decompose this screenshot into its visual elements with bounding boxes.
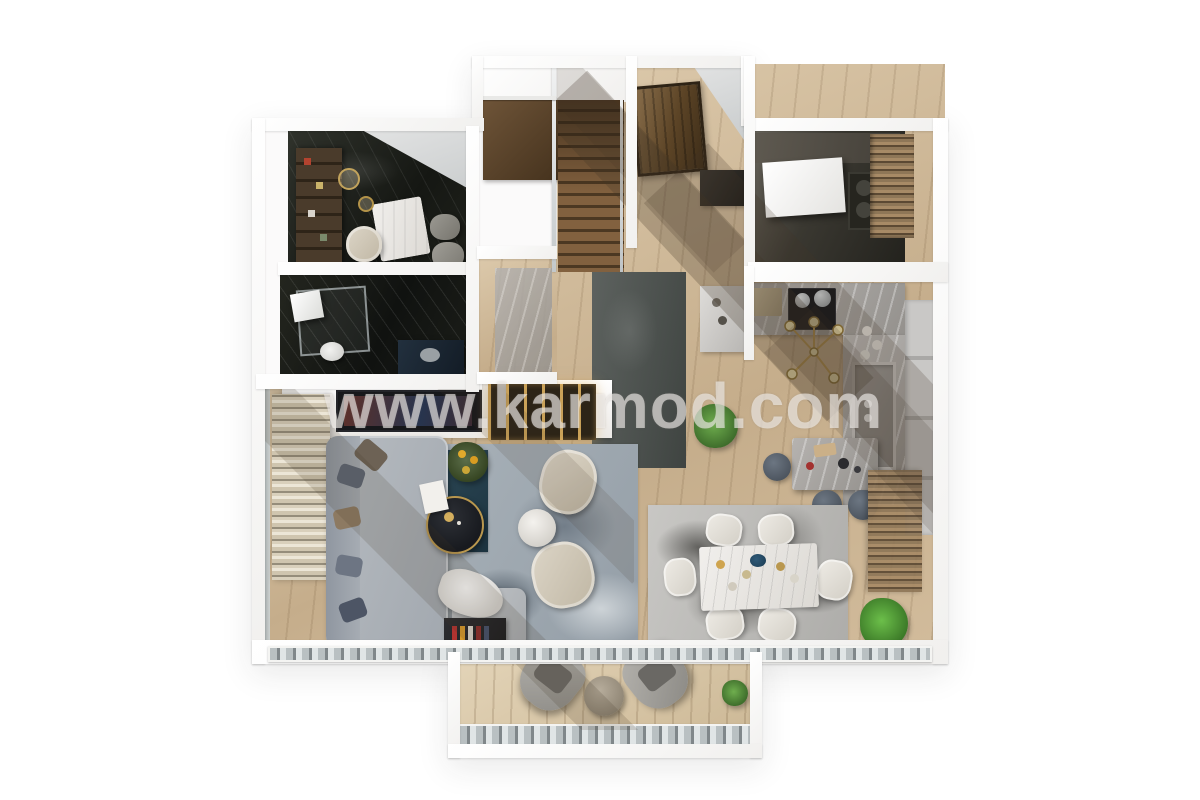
stair-glass-balustrade-right: [620, 100, 623, 272]
stair-landing: [483, 100, 560, 180]
console-decor-icon: [712, 298, 721, 307]
corridor-runner-rug: [592, 272, 686, 468]
cooking-pot-icon: [814, 290, 831, 307]
wall-balcony-bottom: [448, 744, 762, 758]
coffee-table-decor-icon: [444, 512, 454, 522]
utility-table: [762, 157, 846, 217]
dining-chair: [662, 556, 698, 597]
wall-top-block-left: [472, 56, 483, 126]
wall-bathroom-living: [256, 374, 482, 389]
round-side-table: [518, 509, 556, 547]
entry-console: [700, 170, 744, 206]
study-tub-chair: [346, 226, 382, 262]
balcony-glass-railing: [458, 724, 754, 746]
wall-stair-entry: [626, 56, 637, 248]
tv-screen: [344, 396, 472, 426]
dining-louvered-blinds: [868, 470, 922, 592]
wall-hallway-bottom: [477, 372, 557, 384]
wall-perimeter-top-left: [252, 118, 484, 131]
flower-arrangement: [448, 442, 488, 482]
wall-top-block-top: [472, 56, 752, 68]
cooking-pot-icon: [795, 293, 810, 308]
pendant-lamp-icon: [358, 196, 374, 212]
island-red-decor-icon: [806, 462, 814, 470]
wall-stair-hallway: [477, 246, 557, 259]
wall-rooms-hall: [466, 126, 479, 392]
stair-glass-balustrade-left: [552, 62, 556, 272]
floorplan-render: www.karmod.com: [0, 0, 1200, 800]
bar-stool: [763, 453, 791, 481]
utility-louvered-wardrobe: [870, 134, 914, 238]
study-guest-chair: [430, 214, 460, 240]
bookshelf-decor-icon: [304, 158, 311, 165]
wall-study-bathroom: [278, 262, 478, 275]
dining-chair: [756, 606, 797, 644]
balcony-side-table: [584, 676, 624, 716]
balcony-plant: [722, 680, 748, 706]
study-bookshelf: [296, 148, 342, 264]
table-setting-icon: [716, 560, 725, 569]
vanity-basin-icon: [420, 348, 440, 362]
wall-balcony-left: [448, 652, 460, 758]
wall-utility-kitchen: [748, 262, 948, 282]
sofa-pillow-icon: [334, 554, 363, 578]
corridor-plant: [694, 404, 738, 448]
toilet: [320, 342, 344, 361]
sink-faucet-icon: [864, 400, 872, 408]
glass-jars-icon: [862, 326, 872, 336]
pendant-lamp-icon: [338, 168, 360, 190]
wall-perimeter-right: [933, 118, 948, 664]
wall-balcony-right: [750, 652, 762, 758]
centerpiece-bowl-icon: [750, 554, 766, 567]
dining-chair: [757, 512, 796, 547]
hall-marble-runner: [495, 268, 552, 374]
entrance-door: [630, 81, 708, 177]
backlit-shelf-unit: [488, 384, 596, 440]
bathroom-skylight: [290, 290, 324, 323]
brass-chandelier-icon: [782, 316, 846, 388]
wall-kitchen-corridor: [744, 266, 754, 360]
wall-entry-utility: [744, 56, 755, 266]
yellow-flowers-icon: [458, 450, 466, 458]
living-curtains: [272, 394, 330, 580]
stair-handrail: [483, 96, 556, 100]
coffee-machine: [752, 288, 782, 316]
island-plate-icon: [838, 458, 849, 469]
window-wall-bottom-glass: [268, 646, 932, 662]
staircase: [558, 100, 624, 272]
wall-perimeter-top-right: [744, 118, 948, 131]
wall-perimeter-left: [252, 118, 265, 664]
corridor-console-table: [700, 286, 746, 352]
